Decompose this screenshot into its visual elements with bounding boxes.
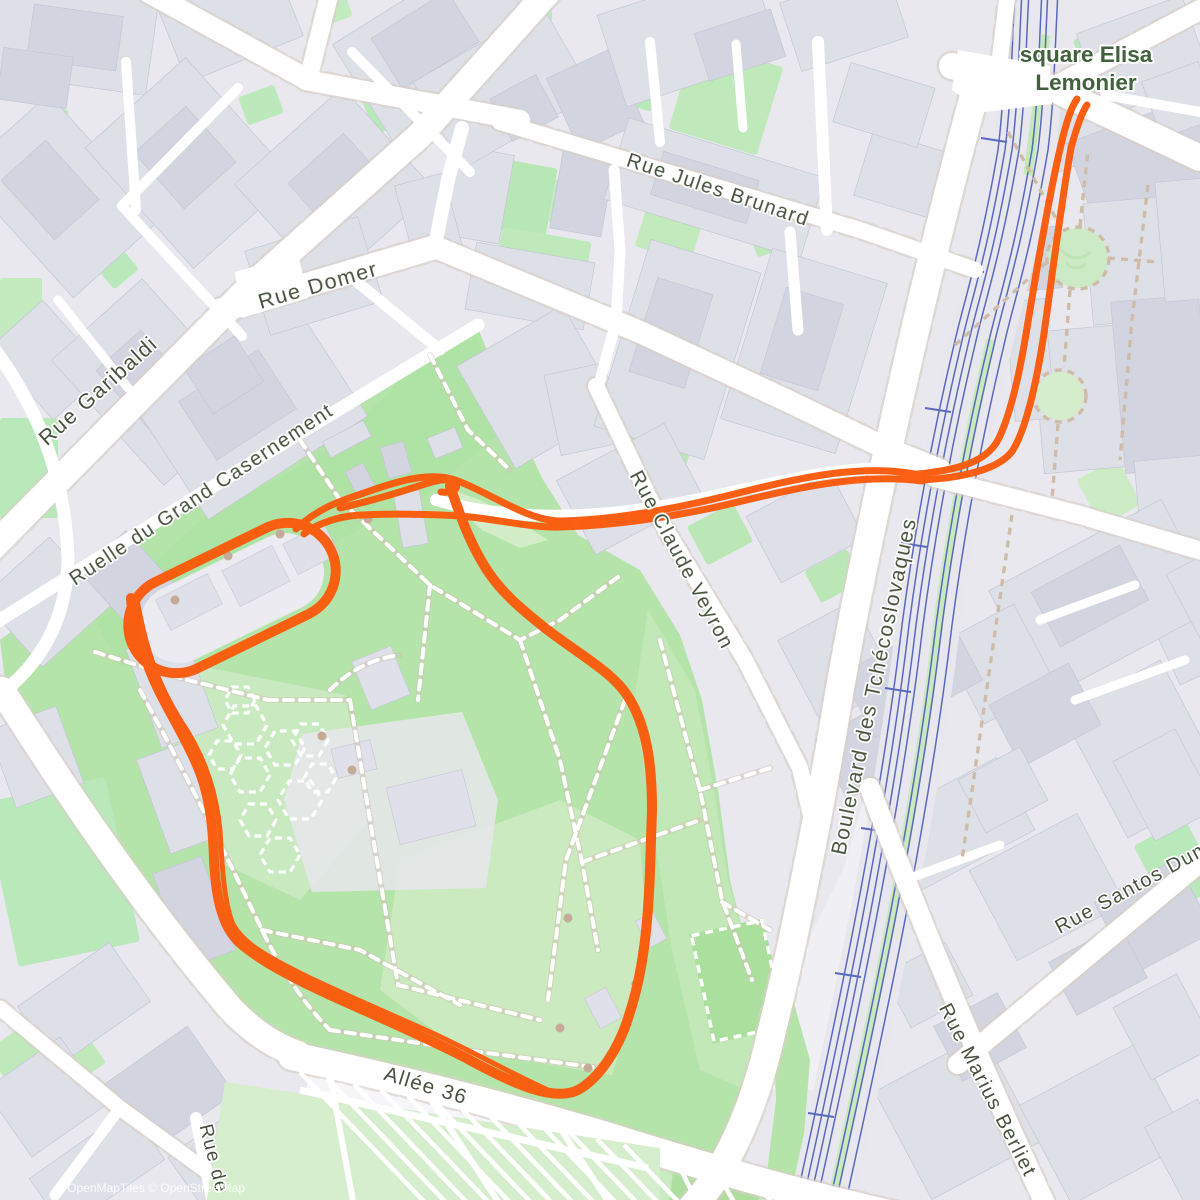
svg-text:Lemonier: Lemonier [1035, 70, 1137, 95]
svg-text:square Elisa: square Elisa [1020, 42, 1153, 67]
svg-text:© OpenMapTiles © OpenStreetMap: © OpenMapTiles © OpenStreetMap [55, 1181, 245, 1195]
